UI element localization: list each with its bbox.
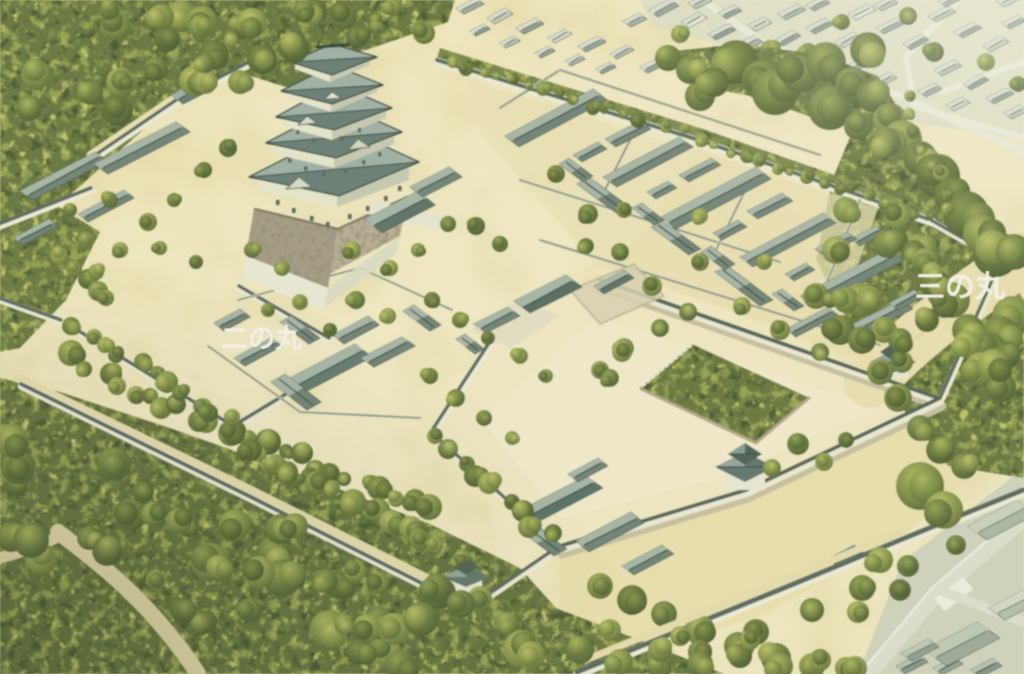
svg-text:三の丸: 三の丸 bbox=[915, 271, 1005, 304]
svg-text:二の丸: 二の丸 bbox=[221, 324, 302, 354]
